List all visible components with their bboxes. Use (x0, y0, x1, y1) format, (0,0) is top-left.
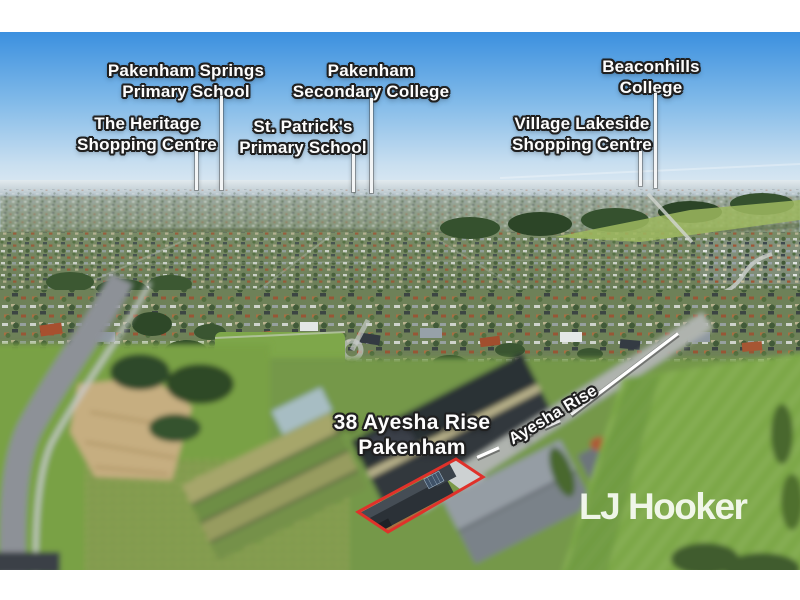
leader-line-village-lakeside-shopping-centre (639, 151, 642, 186)
property-address-line: 38 Ayesha Rise (334, 410, 491, 435)
landmark-label-village-lakeside-shopping-centre: Village Lakeside Shopping Centre (512, 113, 652, 155)
landmark-label-line: The Heritage (77, 113, 217, 134)
landmark-label-pakenham-secondary-college: Pakenham Secondary College (293, 60, 449, 102)
leader-line-pakenham-springs-primary-school (220, 96, 223, 190)
landmark-label-line: Pakenham Springs (108, 60, 264, 81)
landmark-label-line: Primary School (239, 137, 367, 158)
landmark-label-line: Beaconhills (602, 56, 700, 77)
property-address-line: Pakenham (334, 435, 491, 460)
landmark-label-line: Village Lakeside (512, 113, 652, 134)
property-address-label: 38 Ayesha Rise Pakenham (334, 410, 491, 460)
landmark-label-line: Shopping Centre (512, 134, 652, 155)
landmark-label-line: Primary School (108, 81, 264, 102)
landmark-label-line: College (602, 77, 700, 98)
aerial-photo: Pakenham Springs Primary School The Heri… (0, 32, 800, 570)
landmark-label-line: St. Patrick's (239, 116, 367, 137)
landmark-label-pakenham-springs-primary-school: Pakenham Springs Primary School (108, 60, 264, 102)
leader-line-st-patricks-primary-school (352, 154, 355, 192)
landmark-label-line: Pakenham (293, 60, 449, 81)
leader-line-the-heritage-shopping-centre (195, 151, 198, 190)
leader-line-beaconhills-college (654, 93, 657, 188)
landmark-label-the-heritage-shopping-centre: The Heritage Shopping Centre (77, 113, 217, 155)
landmark-label-st-patricks-primary-school: St. Patrick's Primary School (239, 116, 367, 158)
agency-logo: LJ Hooker (579, 488, 746, 525)
landmark-label-beaconhills-college: Beaconhills College (602, 56, 700, 98)
listing-photo-page: Pakenham Springs Primary School The Heri… (0, 0, 800, 600)
leader-line-pakenham-secondary-college (370, 98, 373, 193)
